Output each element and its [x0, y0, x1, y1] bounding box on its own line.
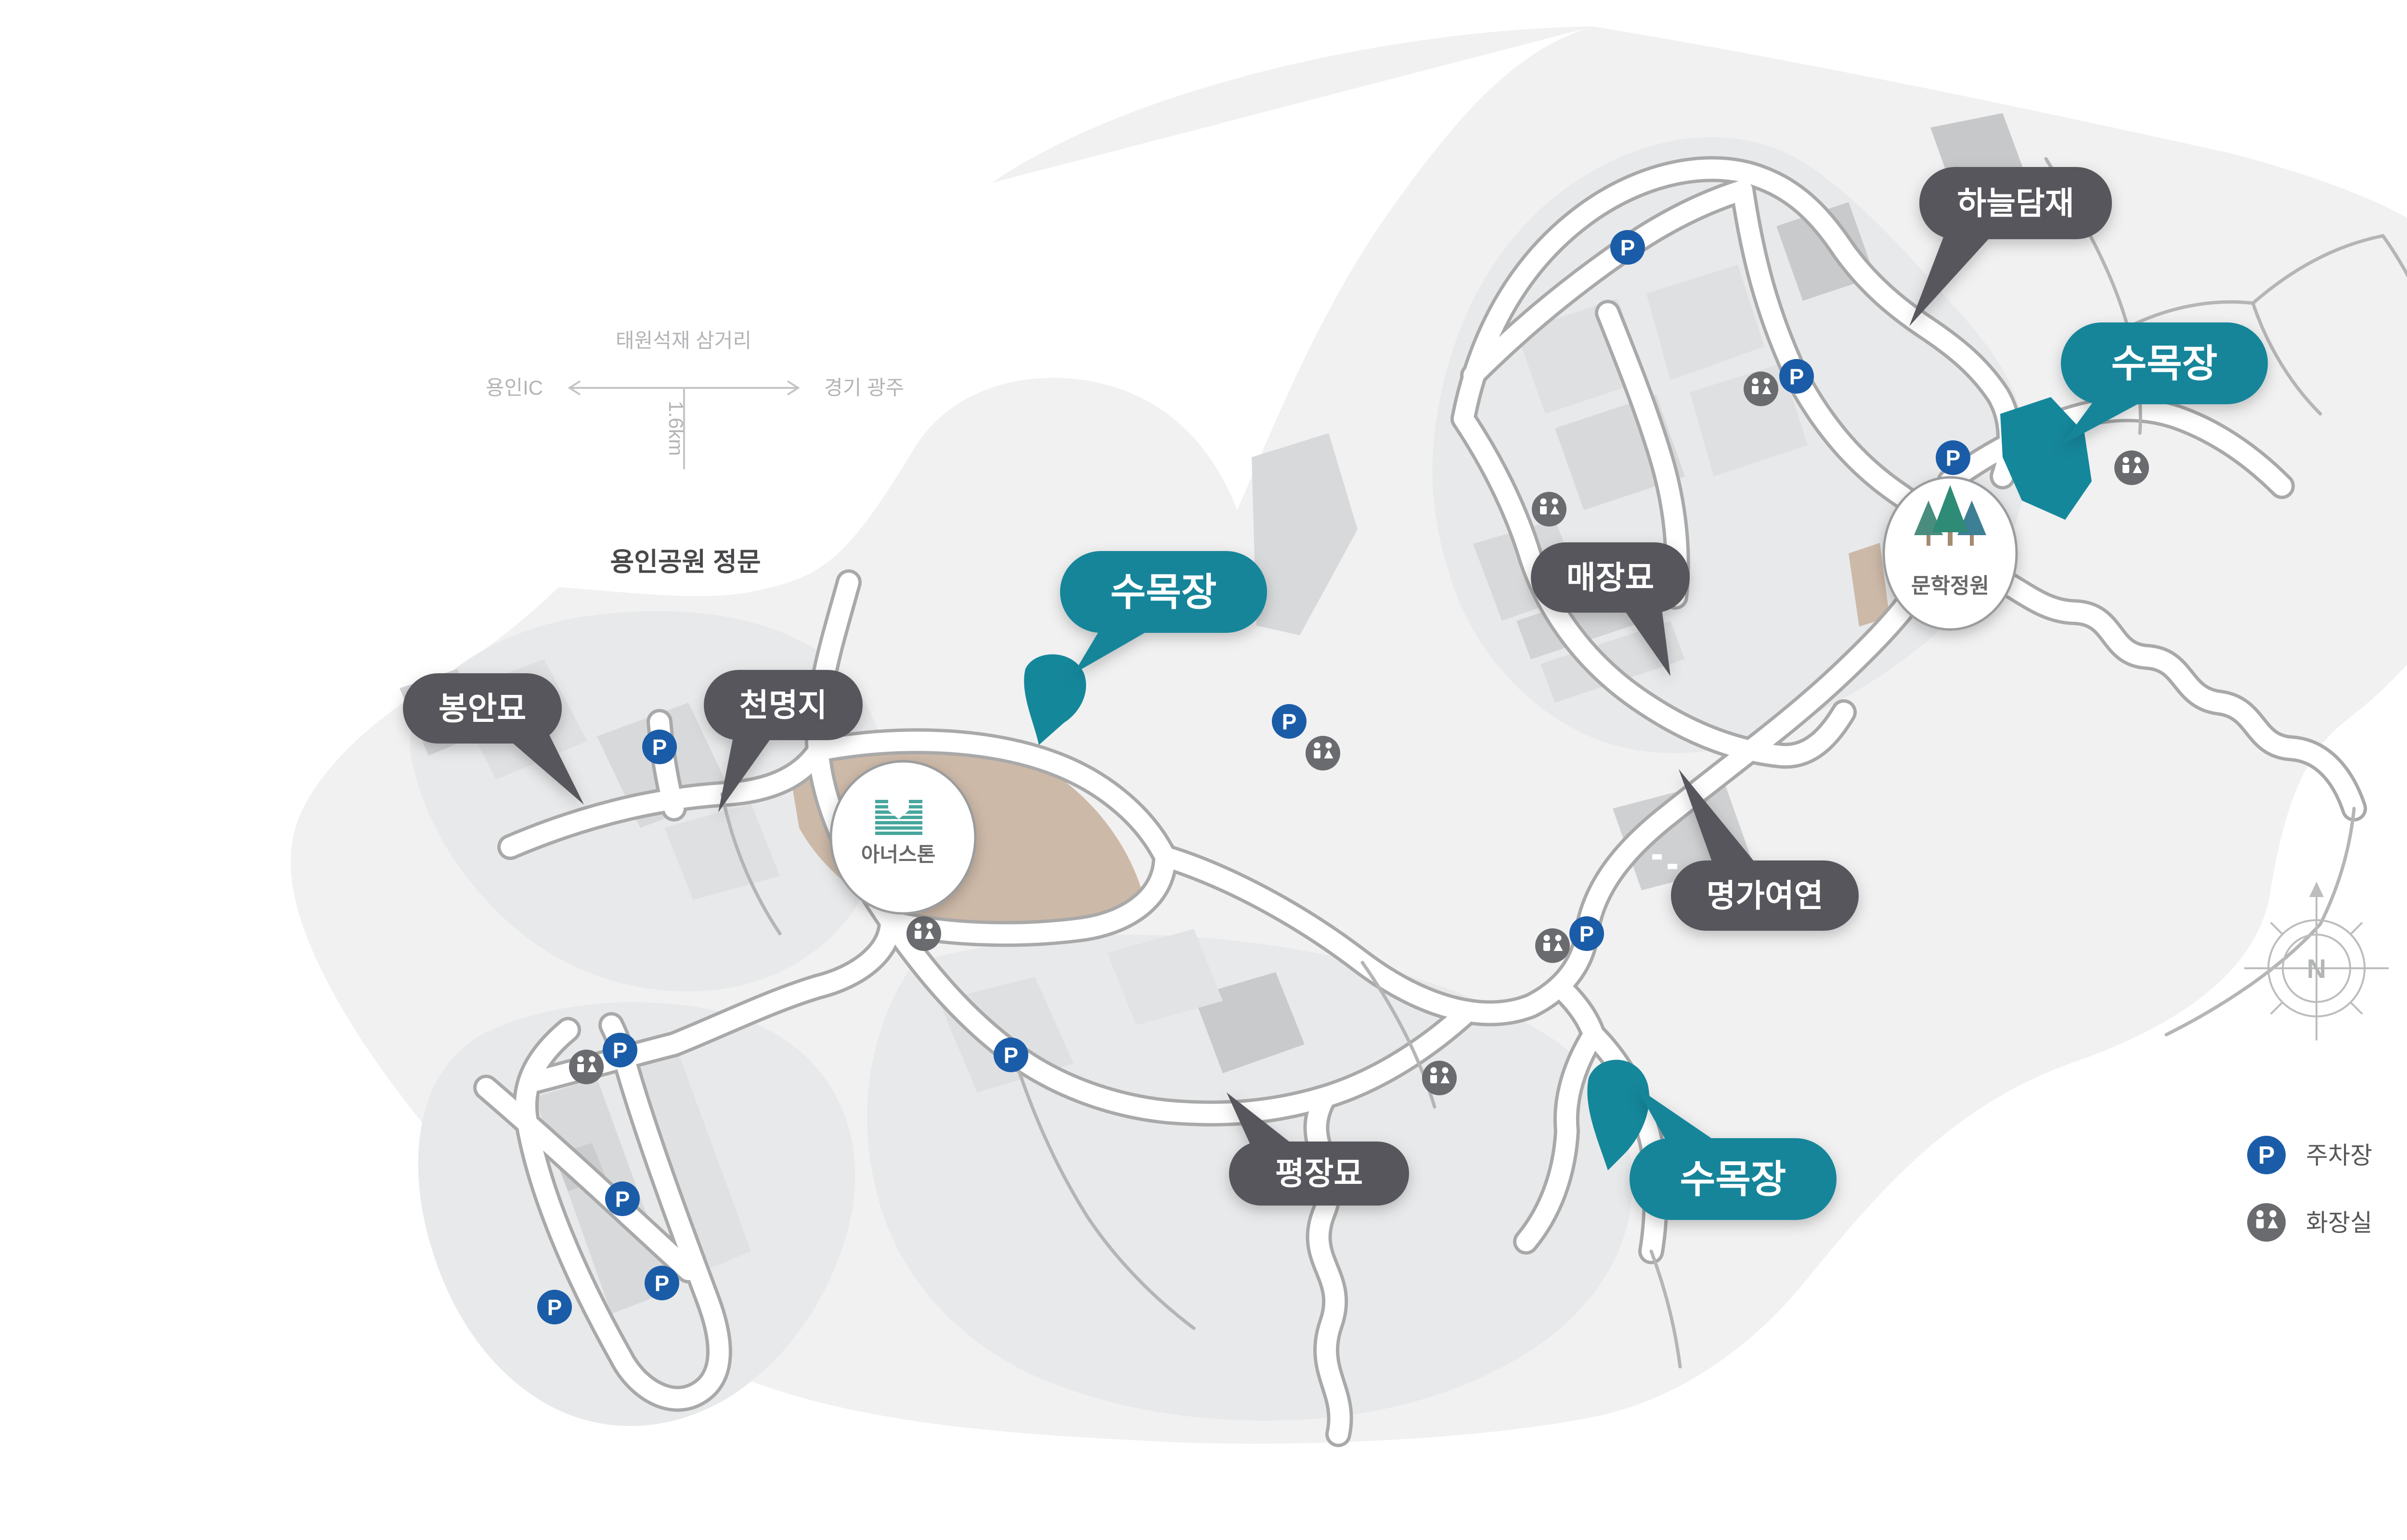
badge-pyeongjangmyo-label: 평장묘: [1275, 1155, 1363, 1191]
restroom-icon: [2114, 450, 2149, 485]
restroom-icon: [1744, 372, 1778, 406]
parking-icon: P: [645, 1266, 679, 1300]
restroom-icon: [1422, 1061, 1457, 1095]
restroom-icon: [906, 916, 941, 951]
svg-text:P: P: [547, 1295, 562, 1320]
svg-text:P: P: [655, 1271, 670, 1296]
svg-text:P: P: [1282, 709, 1297, 734]
parking-icon: P: [1569, 916, 1604, 951]
restroom-icon: [569, 1050, 604, 1084]
svg-text:P: P: [615, 1187, 630, 1212]
badge-sumokjang-bottom-label: 수목장: [1680, 1158, 1786, 1201]
park-map-canvas: PPPPPPPPPPP 문학정원 아너스톤 하늘담재 수: [0, 0, 2407, 1540]
badge-haneuldamjae-label: 하늘담재: [1957, 185, 2074, 221]
legend: P 주차장 화장실: [2247, 1136, 2372, 1242]
honorstone-label: 아너스톤: [861, 843, 936, 866]
svg-text:P: P: [2258, 1142, 2275, 1169]
badge-maejangmyo-label: 매장묘: [1566, 560, 1654, 595]
parking-icon: P: [603, 1033, 637, 1067]
legend-parking-icon: P: [2247, 1136, 2286, 1174]
landmark-munhak-garden: 문학정원: [1884, 477, 2017, 629]
restroom-icon: [1535, 928, 1570, 963]
parking-icon: P: [642, 730, 677, 764]
restroom-icon: [1306, 736, 1340, 770]
svg-text:P: P: [1946, 446, 1961, 471]
compass-north-label: N: [2307, 953, 2326, 984]
parking-icon: P: [994, 1038, 1028, 1072]
parking-icon: P: [1779, 359, 1814, 394]
legend-restroom-icon: [2247, 1203, 2286, 1242]
badge-sumokjang-left-label: 수목장: [1111, 571, 1217, 614]
svg-text:P: P: [1620, 235, 1635, 260]
badge-bonganmyo-label: 봉안묘: [439, 691, 526, 726]
parking-icon: P: [1272, 704, 1307, 739]
parking-icon: P: [1610, 230, 1645, 265]
svg-text:P: P: [1789, 364, 1804, 389]
east-label: 경기 광주: [824, 376, 904, 399]
munhak-garden-label: 문학정원: [1911, 574, 1989, 598]
direction-diagram: 태원석재 삼거리 용인IC 경기 광주 1.6km 용인공원 정문: [486, 329, 905, 577]
svg-text:P: P: [1004, 1043, 1019, 1068]
svg-text:P: P: [1579, 922, 1594, 947]
landmark-honorstone: 아너스톤: [831, 761, 975, 913]
distance-label: 1.6km: [665, 401, 687, 456]
badge-sumokjang-top-label: 수목장: [2111, 342, 2218, 385]
legend-parking-label: 주차장: [2306, 1142, 2372, 1169]
badge-cheonmyeongji-label: 천명지: [739, 687, 827, 723]
svg-text:P: P: [652, 735, 667, 760]
parking-icon: P: [537, 1290, 572, 1324]
gate-label: 용인공원 정문: [610, 548, 761, 577]
badge-myeonggayeoyeon-label: 명가여연: [1707, 878, 1824, 913]
parking-icon: P: [1936, 440, 1970, 475]
west-label: 용인IC: [486, 376, 543, 399]
svg-text:P: P: [613, 1038, 628, 1063]
legend-restroom-label: 화장실: [2306, 1209, 2372, 1236]
junction-label: 태원석재 삼거리: [616, 329, 751, 352]
restroom-icon: [1532, 492, 1566, 526]
parking-icon: P: [605, 1181, 640, 1216]
